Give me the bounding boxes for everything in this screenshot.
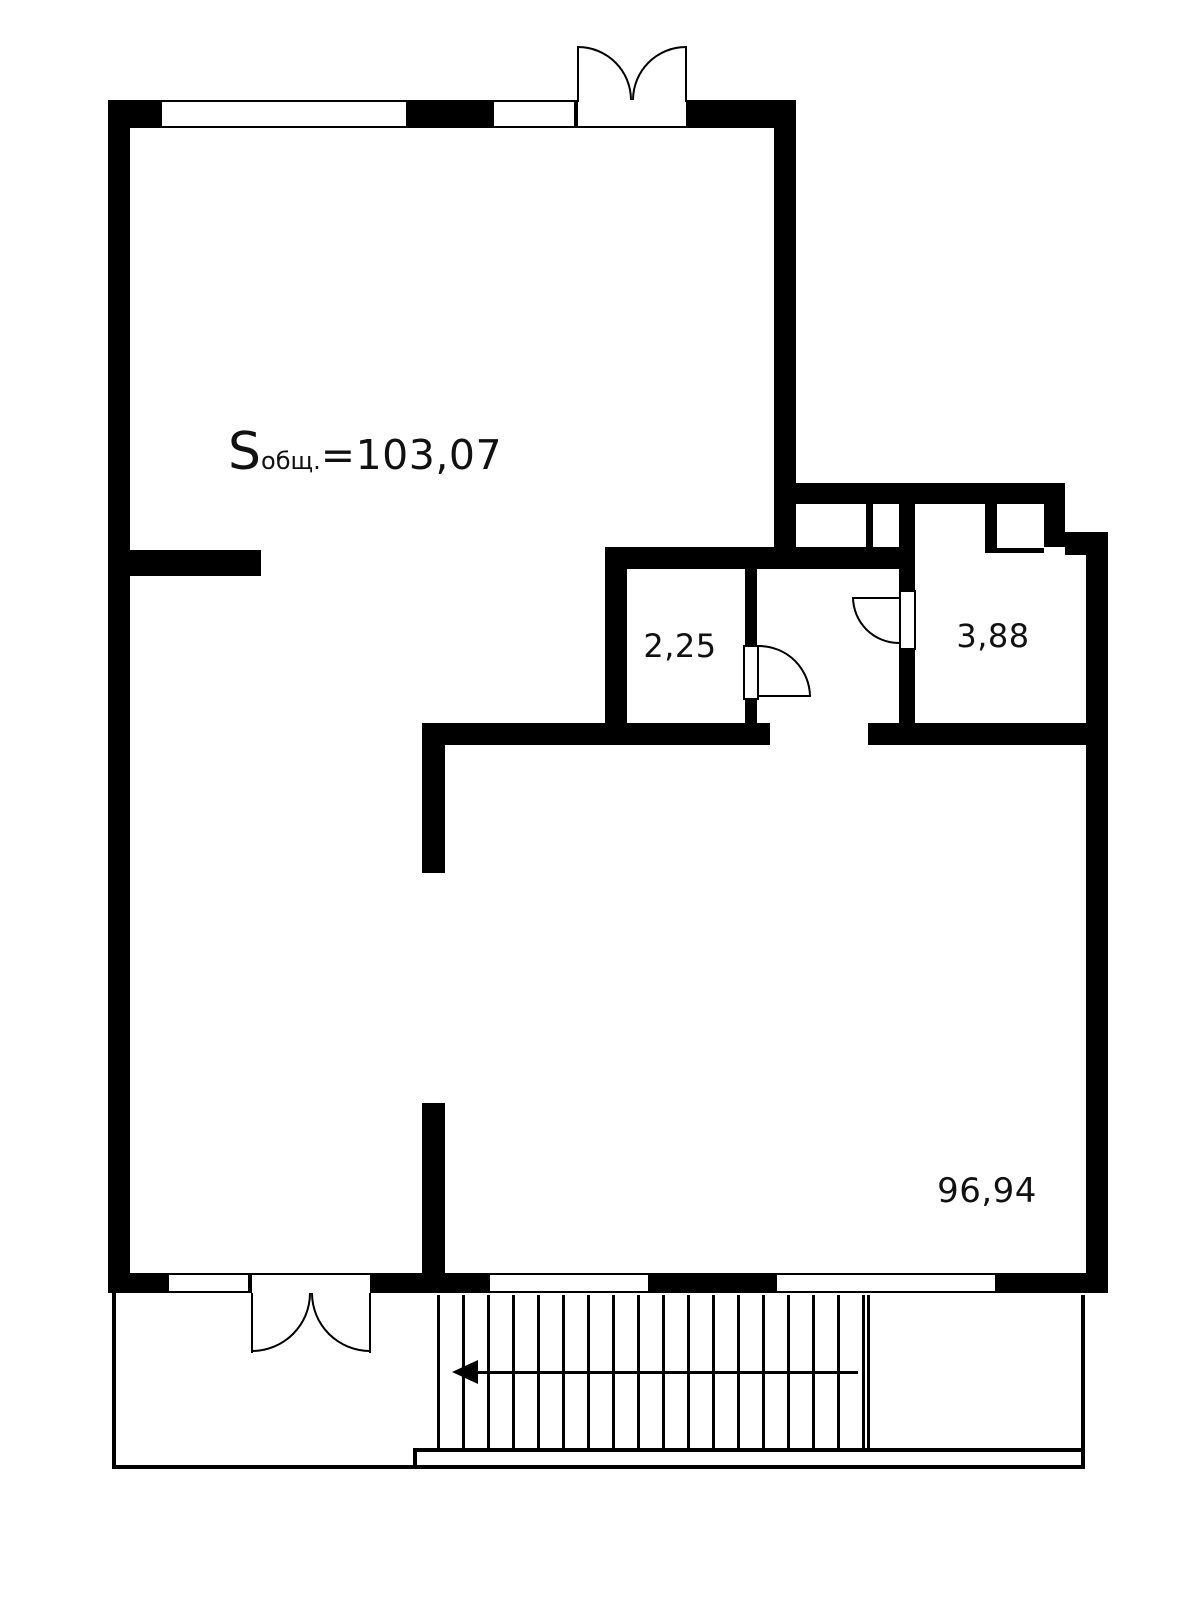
door-swing-arc — [852, 597, 899, 644]
vent-shaft-bottom-line — [997, 548, 1044, 553]
exterior-wall-right — [1086, 532, 1108, 1293]
interior-wall-divider-upper — [422, 745, 445, 873]
window — [492, 100, 576, 128]
niche-divider-thin — [866, 504, 873, 547]
interior-wall-room225-left — [605, 569, 627, 723]
door-opening-room388 — [899, 590, 916, 650]
total-area-prefix: S — [228, 426, 261, 478]
interior-wall-hall-bottom-right — [868, 723, 1108, 745]
terrace-edge-bottom — [112, 1465, 1085, 1469]
window — [775, 1273, 997, 1293]
interior-wall-main-room-right — [774, 100, 796, 569]
interior-wall-room225-right-lower — [745, 700, 757, 723]
floor-plan: Sобщ.=103,07 2,25 3,88 96,94 — [0, 0, 1183, 1600]
exterior-wall-left — [108, 100, 130, 1293]
room-area-label-9694: 96,94 — [937, 1171, 1037, 1211]
vent-shaft-stub — [985, 504, 997, 553]
stairs-bottom-edge — [413, 1448, 1085, 1452]
room-area-label-225: 2,25 — [643, 627, 716, 665]
window — [160, 100, 408, 128]
door-swing-arc — [311, 1293, 370, 1352]
door-swing-arc — [632, 46, 686, 100]
door-swing-arc — [578, 46, 632, 100]
door-swing-arc — [759, 645, 811, 697]
exterior-wall-upper-right-side — [1044, 483, 1065, 547]
exterior-wall-upper-right-top — [796, 483, 1065, 504]
exterior-wall-step — [1065, 532, 1108, 555]
stairs-direction-arrow-shaft — [470, 1371, 858, 1374]
door-opening-room225 — [743, 645, 759, 700]
door-swing-arc — [252, 1293, 311, 1352]
interior-wall-stub-left — [108, 550, 261, 576]
window — [167, 1273, 250, 1293]
interior-wall-divider-lower — [422, 1103, 445, 1273]
interior-wall-room388-left-upper — [899, 504, 915, 592]
interior-wall-room225-right-upper — [745, 569, 757, 645]
double-door-top-opening — [576, 100, 688, 128]
interior-wall-hall-top — [605, 547, 899, 569]
interior-wall-hall-bottom-left — [422, 723, 770, 745]
landing-right-edge — [1081, 1295, 1085, 1467]
window — [488, 1273, 650, 1293]
room-area-label-388: 3,88 — [956, 617, 1029, 655]
interior-wall-room388-left-lower — [899, 648, 915, 723]
double-door-bottom-opening — [250, 1273, 372, 1293]
terrace-edge-left — [112, 1293, 116, 1469]
stairs-direction-arrow-head — [452, 1360, 478, 1384]
total-area-value: =103,07 — [321, 435, 502, 476]
stairs-right-edge — [867, 1295, 870, 1448]
total-area-subscript: общ. — [261, 449, 321, 473]
total-area-label: Sобщ.=103,07 — [228, 426, 502, 478]
